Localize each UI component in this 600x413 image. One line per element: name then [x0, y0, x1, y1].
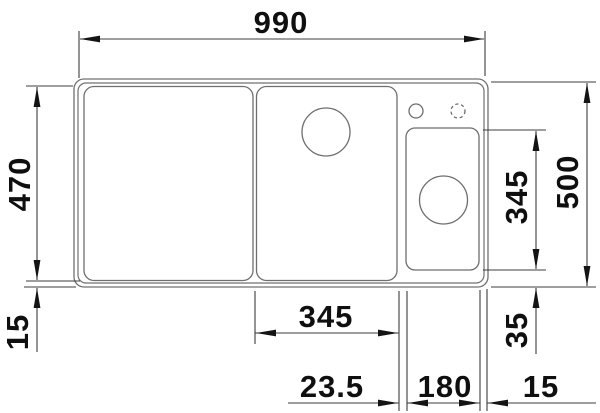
technical-drawing: 990 470 15 500 345 35 — [0, 0, 600, 413]
sink-dimension-diagram: 990 470 15 500 345 35 — [0, 0, 600, 413]
dim-front-rim: 15 — [0, 287, 76, 352]
right-bowl — [406, 128, 479, 270]
dim-right-bowl-width-label: 180 — [418, 369, 473, 404]
dim-bowl-gap: 23.5 — [288, 369, 399, 406]
dim-inner-depth: 470 — [2, 86, 80, 281]
arrowhead — [533, 131, 540, 151]
dim-right-bowl-depth: 345 — [483, 130, 546, 270]
dim-total-depth-label: 500 — [550, 155, 585, 210]
arrowhead — [488, 400, 508, 407]
dim-right-rim-label: 15 — [523, 369, 559, 404]
dim-right-bowl-bottom-offset-label: 35 — [499, 312, 534, 348]
left-compartment-edge — [84, 87, 253, 281]
dim-right-bowl-width: 180 — [407, 369, 480, 406]
tap-hole-optional-dashed-icon — [451, 104, 465, 118]
arrowhead — [256, 330, 276, 337]
right-bowl-drain-icon — [420, 176, 468, 224]
arrowhead — [80, 36, 100, 43]
arrowhead — [584, 83, 591, 103]
main-bowl-drain-icon — [302, 108, 350, 156]
dim-right-rim: 15 — [487, 369, 596, 406]
main-bowl — [257, 87, 398, 281]
dim-right-bowl-bottom-offset: 35 — [499, 288, 539, 354]
main-bowl-edge — [257, 87, 398, 281]
dim-main-bowl-width-label: 345 — [299, 299, 354, 334]
arrowhead — [584, 266, 591, 286]
arrowhead — [378, 330, 398, 337]
dim-bowl-gap-label: 23.5 — [300, 369, 364, 404]
arrowhead — [464, 36, 484, 43]
dim-total-width-label: 990 — [254, 5, 309, 40]
dim-main-bowl-width: 345 — [255, 299, 399, 336]
dim-inner-depth-label: 470 — [2, 157, 37, 212]
dim-front-rim-label: 15 — [0, 314, 35, 350]
arrowhead — [34, 87, 41, 107]
dim-right-bowl-depth-label: 345 — [499, 170, 534, 225]
tap-hole-icon — [409, 104, 423, 118]
left-drainboard — [84, 87, 253, 281]
arrowhead — [533, 288, 540, 308]
arrowhead — [533, 249, 540, 269]
dim-total-width: 990 — [79, 5, 485, 78]
arrowhead — [34, 260, 41, 280]
arrowhead — [34, 288, 41, 308]
arrowhead — [378, 400, 398, 407]
